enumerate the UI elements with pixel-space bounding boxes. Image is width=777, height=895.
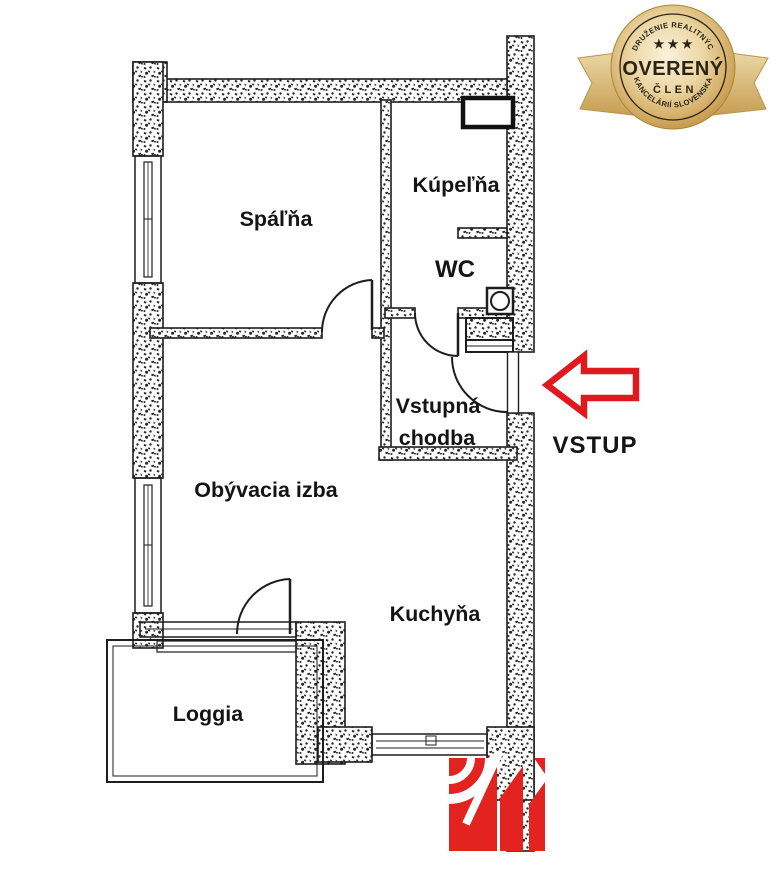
window-kuchyna [372, 734, 487, 755]
floorplan-scene: Spáľňa Kúpeľňa WC Vstupná chodba Obývaci… [0, 0, 777, 895]
room-label-kuchyna: Kuchyňa [390, 602, 482, 626]
wall-wc-kupelna [458, 228, 507, 238]
room-label-chodba: Vstupná chodba [396, 394, 487, 450]
room-label-loggia: Loggia [173, 702, 245, 726]
washbasin [487, 288, 513, 314]
entrance-marker: VSTUP [547, 356, 638, 459]
badge-stars: ★ ★ ★ [654, 37, 693, 51]
room-label-kupelna: Kúpeľňa [412, 173, 500, 197]
door-balcony [237, 579, 290, 634]
floorplan-page: Spáľňa Kúpeľňa WC Vstupná chodba Obývaci… [0, 0, 777, 895]
wall-spalna-bottom [150, 328, 322, 338]
door-spalna [322, 280, 372, 332]
entrance-arrow-icon [547, 356, 636, 413]
badge-arc-top-text: ZDRUŽENIE REALITNÝCH [0, 0, 716, 52]
window-obyvacia [135, 478, 161, 613]
wall-left-a [133, 62, 163, 156]
door-wc [415, 313, 458, 356]
room-label-obyvacia: Obývacia izba [194, 478, 338, 502]
wall-left-c [133, 613, 163, 648]
logo-bar-right-top [534, 758, 545, 774]
wall-top [136, 79, 507, 102]
badge-title: OVERENÝ [622, 56, 723, 80]
hall-cabinet [466, 318, 513, 352]
badge-subtitle: ČLEN [653, 83, 697, 96]
wall-wc-bottom-left [385, 308, 415, 318]
wall-left-b [133, 283, 163, 478]
room-label-spalna: Spáľňa [240, 207, 314, 231]
wall-bottom-left-block [318, 727, 372, 762]
shaft-box [463, 98, 513, 127]
entrance-label: VSTUP [552, 432, 637, 459]
wall-spalna-door-jamb [372, 328, 384, 338]
wall-spalna-kupelna [381, 100, 391, 460]
window-spalna [135, 156, 161, 283]
room-label-wc: WC [435, 256, 475, 283]
